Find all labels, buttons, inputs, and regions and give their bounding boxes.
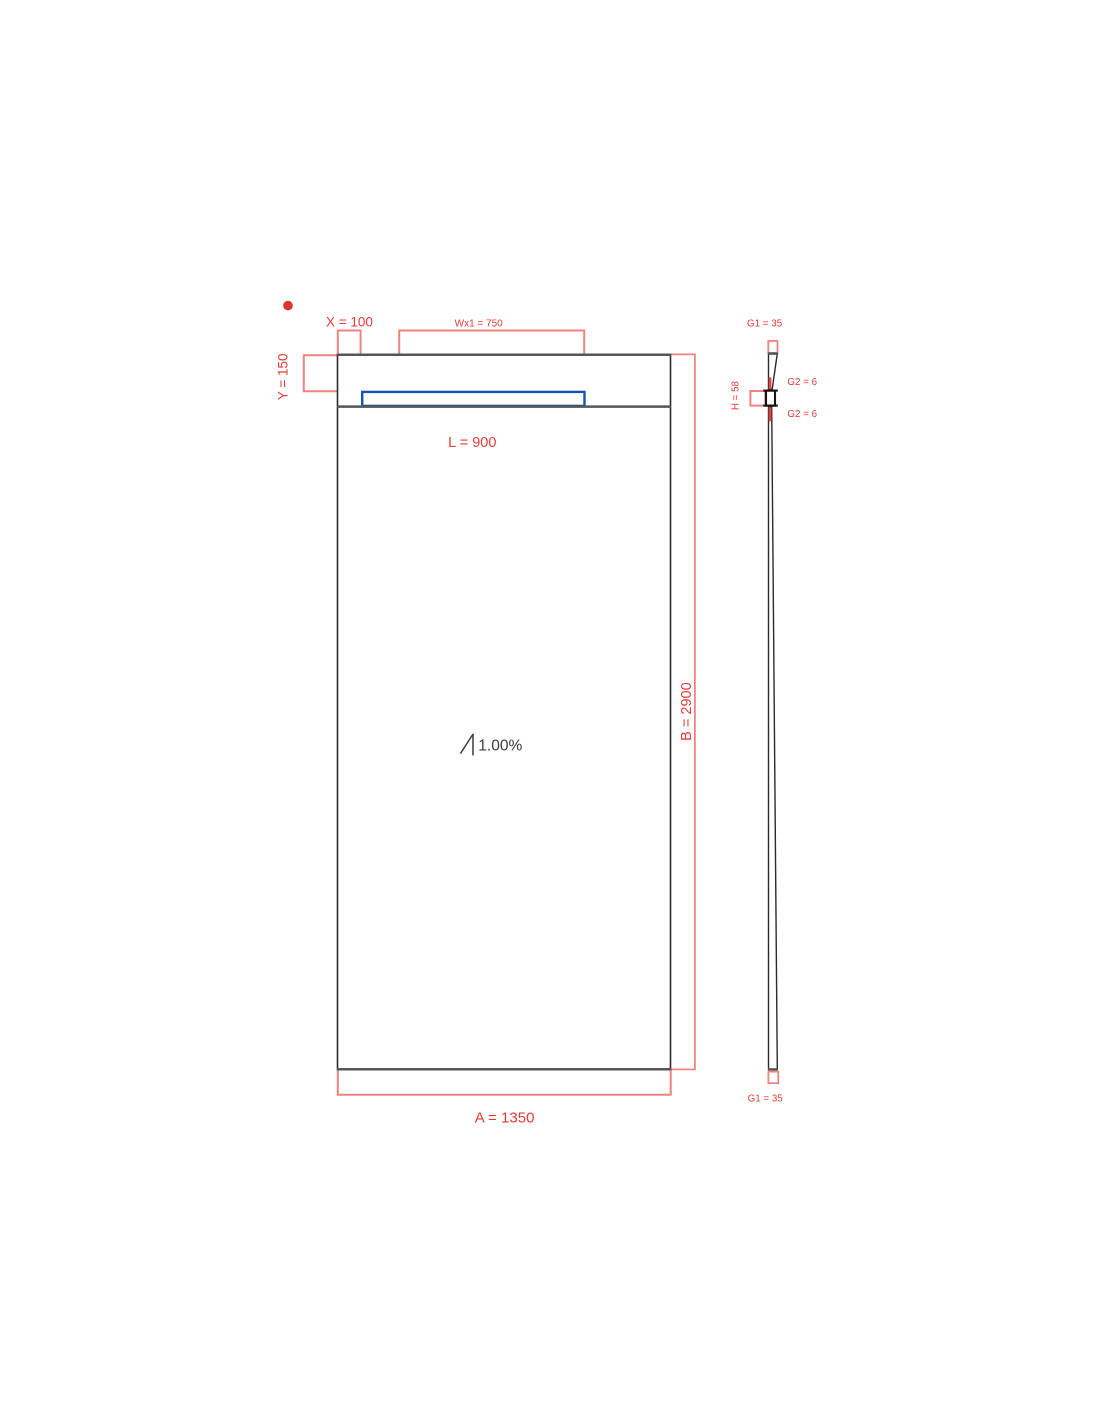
dim-h-box	[750, 391, 765, 406]
dim-x-label: X = 100	[326, 314, 373, 329]
dim-x-extension	[338, 331, 361, 354]
technical-drawing-canvas: 1.00% X = 100 Wx1 = 750 Y = 150 L = 900 …	[0, 0, 1100, 1422]
dim-g1-bottom-label: G1 = 35	[748, 1094, 784, 1105]
dim-l-label: L = 900	[448, 435, 496, 451]
profile-lower-body	[769, 407, 778, 1069]
dim-g2-lower-label: G2 = 6	[787, 409, 817, 420]
side-profile-view: G1 = 35 G2 = 6 G2 = 6 H = 58 G1 = 35	[731, 319, 818, 1105]
dim-g1-top-label: G1 = 35	[747, 319, 783, 330]
dim-y-label: Y = 150	[276, 353, 291, 400]
red-marker-dot	[283, 301, 293, 311]
dim-g1-top-box	[768, 341, 777, 353]
dim-a-extension	[338, 1070, 671, 1095]
slope-label: 1.00%	[478, 738, 522, 755]
dim-wx1-label: Wx1 = 750	[455, 319, 504, 330]
tray-outline	[338, 355, 671, 1070]
dim-g1-bottom-box	[768, 1072, 778, 1084]
dim-a-label: A = 1350	[475, 1109, 535, 1126]
drain-channel	[362, 392, 584, 406]
plan-view: 1.00% X = 100 Wx1 = 750 Y = 150 L = 900 …	[276, 314, 695, 1126]
dim-b-label: B = 2900	[679, 682, 695, 740]
drain-outlet-symbol	[763, 391, 778, 406]
drawing-page: 1.00% X = 100 Wx1 = 750 Y = 150 L = 900 …	[0, 0, 1100, 1422]
dim-g2-upper-label: G2 = 6	[787, 377, 817, 388]
drain-body	[766, 391, 775, 406]
dim-h-label: H = 58	[731, 380, 742, 410]
dim-wx1-extension	[399, 331, 584, 354]
